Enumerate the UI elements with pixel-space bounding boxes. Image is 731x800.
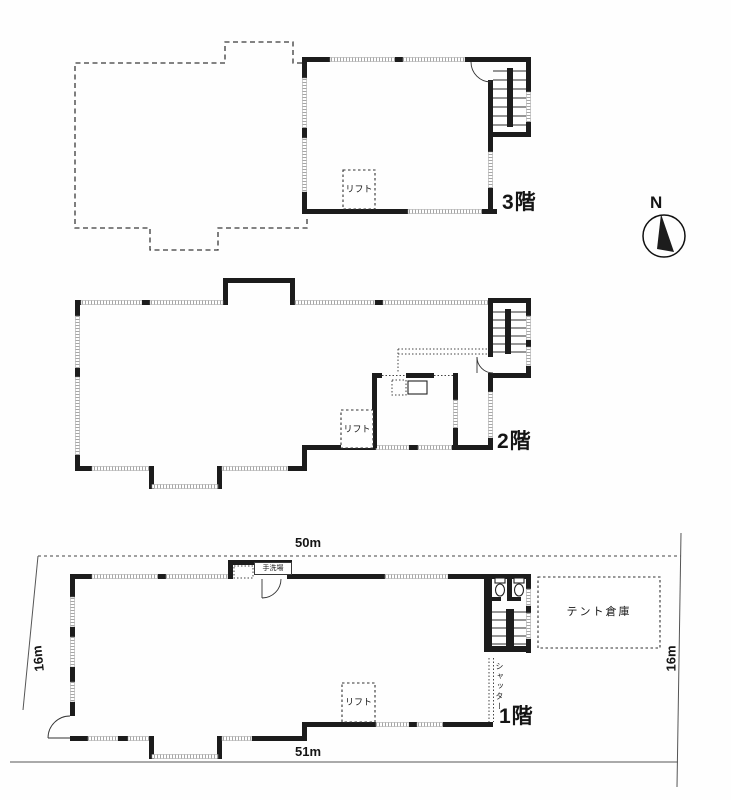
floor2-door-arc	[477, 357, 493, 373]
floor1-side-door-arc	[48, 716, 70, 738]
floor3-label: 3階	[502, 192, 537, 213]
dimension-top: 50m	[286, 536, 330, 549]
floor1-walls	[70, 560, 531, 759]
floor3-stairs	[493, 68, 526, 127]
compass-needle	[657, 214, 674, 252]
floor2-inner-room	[372, 349, 488, 448]
floor2-label: 2階	[497, 431, 532, 452]
floor3-footprint-outline	[75, 42, 307, 250]
toilet-bowl-icon	[496, 584, 505, 596]
floor2-fixture-dotted	[392, 380, 406, 395]
floor2-plan	[75, 278, 531, 489]
floor1-lift-label: リフト	[342, 683, 375, 722]
floor3-lift-label: リフト	[343, 170, 375, 209]
dimension-right: 16m	[665, 637, 678, 681]
floor3-door-arc	[471, 62, 491, 82]
floorplan-drawing	[0, 0, 731, 800]
shutter-label: シャッター	[495, 662, 503, 718]
site-boundary-left	[23, 556, 38, 710]
floor2-fixture-box	[408, 381, 427, 394]
floor1-label: 1階	[499, 706, 534, 727]
floor3-plan	[75, 42, 531, 250]
toilet-tank-icon	[495, 578, 505, 583]
compass-icon	[643, 214, 685, 257]
floor3-walls	[302, 57, 531, 214]
floor2-lift-label: リフト	[341, 410, 373, 448]
site-boundary	[10, 533, 681, 787]
floor1-entrance-door-arc	[262, 579, 281, 598]
floorplan-page: 3階 2階 1階 リフト リフト リフト 手洗場 シャッター テント倉庫 50m…	[0, 0, 731, 800]
floor1-stairs	[492, 609, 526, 647]
compass-north-label: N	[650, 194, 662, 211]
toilet-bowl-icon	[515, 584, 524, 596]
toilet-tank-icon	[514, 578, 524, 583]
floor1-shutter-opening	[489, 658, 494, 722]
floor1-entrance-closet	[234, 566, 253, 578]
tent-storage-label: テント倉庫	[538, 577, 660, 648]
dimension-bottom: 51m	[286, 745, 330, 758]
washroom-label: 手洗場	[254, 562, 292, 575]
floor2-stairs	[493, 309, 526, 354]
floor2-walls	[75, 278, 531, 489]
